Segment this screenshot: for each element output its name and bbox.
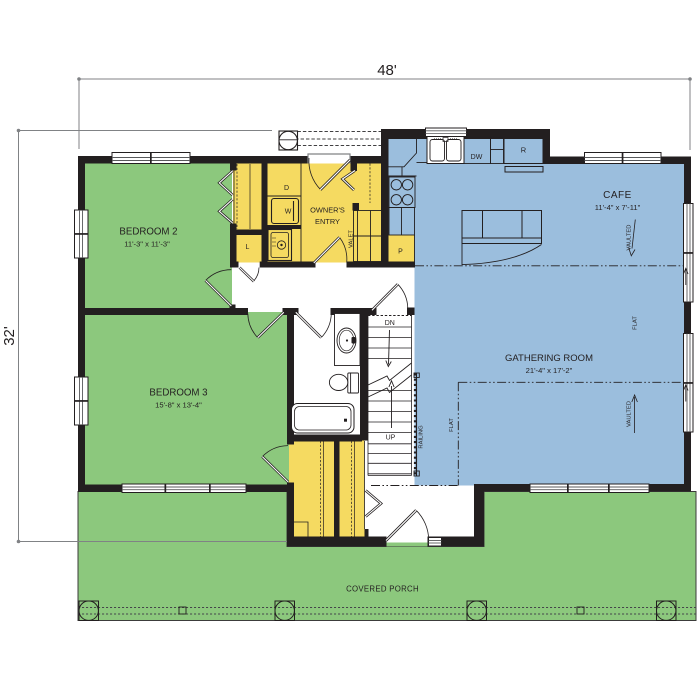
svg-text:OWNER'S: OWNER'S (310, 206, 345, 215)
svg-text:ENTRY: ENTRY (315, 217, 340, 226)
svg-text:FLAT: FLAT (633, 316, 639, 330)
svg-text:COVERED PORCH: COVERED PORCH (346, 585, 419, 594)
svg-text:11'-3" x 11'-3": 11'-3" x 11'-3" (124, 240, 170, 249)
svg-text:FLAT: FLAT (449, 418, 455, 432)
svg-text:BEDROOM 3: BEDROOM 3 (149, 388, 207, 399)
svg-text:15'-8" x 13'-4": 15'-8" x 13'-4" (155, 401, 202, 410)
svg-text:32': 32' (1, 326, 18, 346)
svg-text:VAULTED: VAULTED (627, 225, 633, 251)
svg-text:RAILING: RAILING (419, 425, 425, 449)
svg-text:11'-4" x 7'-11": 11'-4" x 7'-11" (595, 203, 641, 212)
svg-text:R: R (521, 146, 527, 155)
svg-text:GATHERING ROOM: GATHERING ROOM (505, 353, 593, 364)
svg-text:VAULTED: VAULTED (627, 401, 633, 427)
svg-text:P: P (398, 249, 403, 256)
svg-text:W: W (285, 209, 292, 216)
svg-text:DW: DW (471, 154, 483, 161)
svg-text:CAFE: CAFE (603, 190, 632, 201)
svg-text:BEDROOM 2: BEDROOM 2 (119, 227, 177, 238)
svg-text:D: D (284, 185, 289, 192)
svg-text:UP: UP (386, 434, 396, 441)
svg-text:48': 48' (377, 62, 397, 79)
svg-text:DN: DN (385, 320, 395, 327)
svg-text:L: L (246, 244, 250, 251)
svg-text:21'-4" x 17'-2": 21'-4" x 17'-2" (526, 366, 573, 375)
svg-text:VALET: VALET (349, 230, 355, 248)
